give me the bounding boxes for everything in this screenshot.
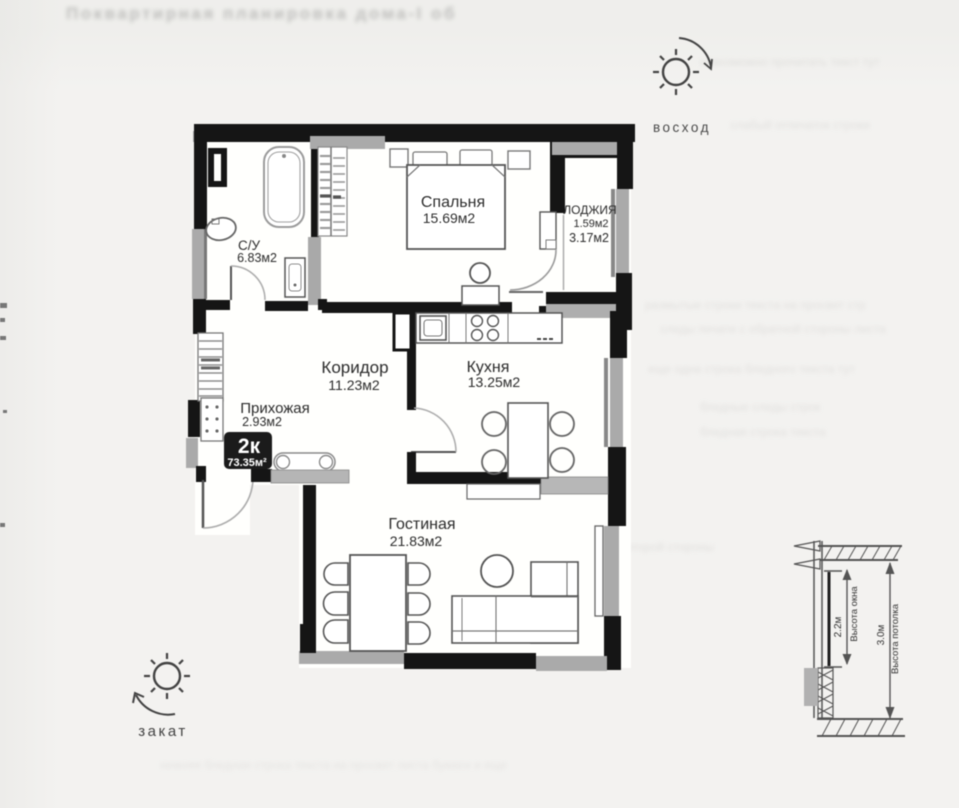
svg-text:закат: закат: [138, 723, 188, 740]
svg-text:15.69м2: 15.69м2: [423, 210, 476, 226]
svg-text:13.25м2: 13.25м2: [468, 374, 521, 390]
svg-text:3.0м: 3.0м: [876, 624, 887, 645]
svg-text:Гостиная: Гостиная: [388, 516, 455, 533]
svg-text:2.2м: 2.2м: [833, 616, 844, 637]
svg-text:6.83м2: 6.83м2: [237, 251, 277, 265]
svg-text:21.83м2: 21.83м2: [390, 533, 443, 549]
svg-text:73.35м²: 73.35м²: [227, 457, 267, 469]
svg-text:восход: восход: [653, 120, 711, 135]
svg-text:Высота потолка: Высота потолка: [890, 603, 901, 674]
svg-text:Спальня: Спальня: [421, 194, 485, 211]
svg-text:2к: 2к: [238, 435, 261, 458]
svg-text:11.23м2: 11.23м2: [328, 377, 380, 393]
svg-text:2.93м2: 2.93м2: [242, 415, 282, 429]
svg-text:Высота окна: Высота окна: [849, 586, 860, 642]
svg-text:3.17м2: 3.17м2: [569, 231, 609, 245]
svg-text:1.59м2: 1.59м2: [573, 218, 608, 230]
svg-text:Коридор: Коридор: [321, 358, 388, 377]
svg-text:ЛОДЖИЯ: ЛОДЖИЯ: [563, 203, 616, 217]
